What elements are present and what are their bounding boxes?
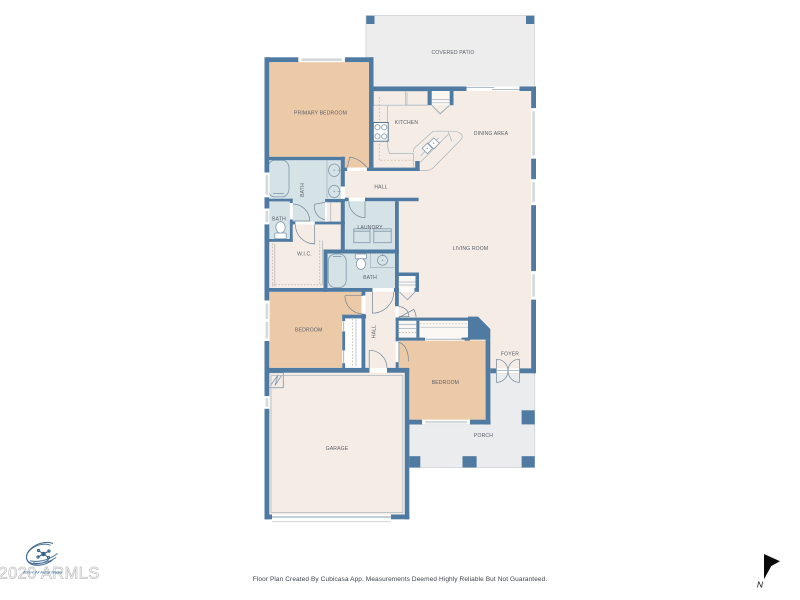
svg-text:LIVING ROOM: LIVING ROOM [453, 246, 489, 252]
svg-text:HALL: HALL [374, 185, 387, 191]
svg-text:DINING AREA: DINING AREA [474, 131, 509, 137]
svg-text:PORCH: PORCH [474, 433, 493, 439]
svg-text:W.I.C.: W.I.C. [297, 251, 312, 257]
svg-text:N: N [757, 580, 764, 590]
svg-text:COVERED PATIO: COVERED PATIO [431, 50, 474, 56]
svg-text:BATH: BATH [300, 183, 306, 197]
svg-text:GARAGE: GARAGE [326, 446, 349, 452]
svg-text:PRIMARY BEDROOM: PRIMARY BEDROOM [294, 111, 347, 117]
svg-text:HALL: HALL [372, 325, 378, 338]
svg-text:Floor Plan Created By Cubicasa: Floor Plan Created By Cubicasa App. Meas… [253, 576, 548, 583]
svg-text:LAUNDRY: LAUNDRY [357, 225, 383, 231]
svg-text:Above All Aerial Media: Above All Aerial Media [22, 570, 63, 575]
svg-text:BATH: BATH [272, 217, 286, 223]
svg-text:FOYER: FOYER [501, 352, 519, 358]
svg-text:BATH: BATH [363, 275, 377, 281]
svg-text:BEDROOM: BEDROOM [432, 380, 459, 386]
svg-text:KITCHEN: KITCHEN [395, 120, 419, 126]
svg-text:BEDROOM: BEDROOM [295, 327, 322, 333]
